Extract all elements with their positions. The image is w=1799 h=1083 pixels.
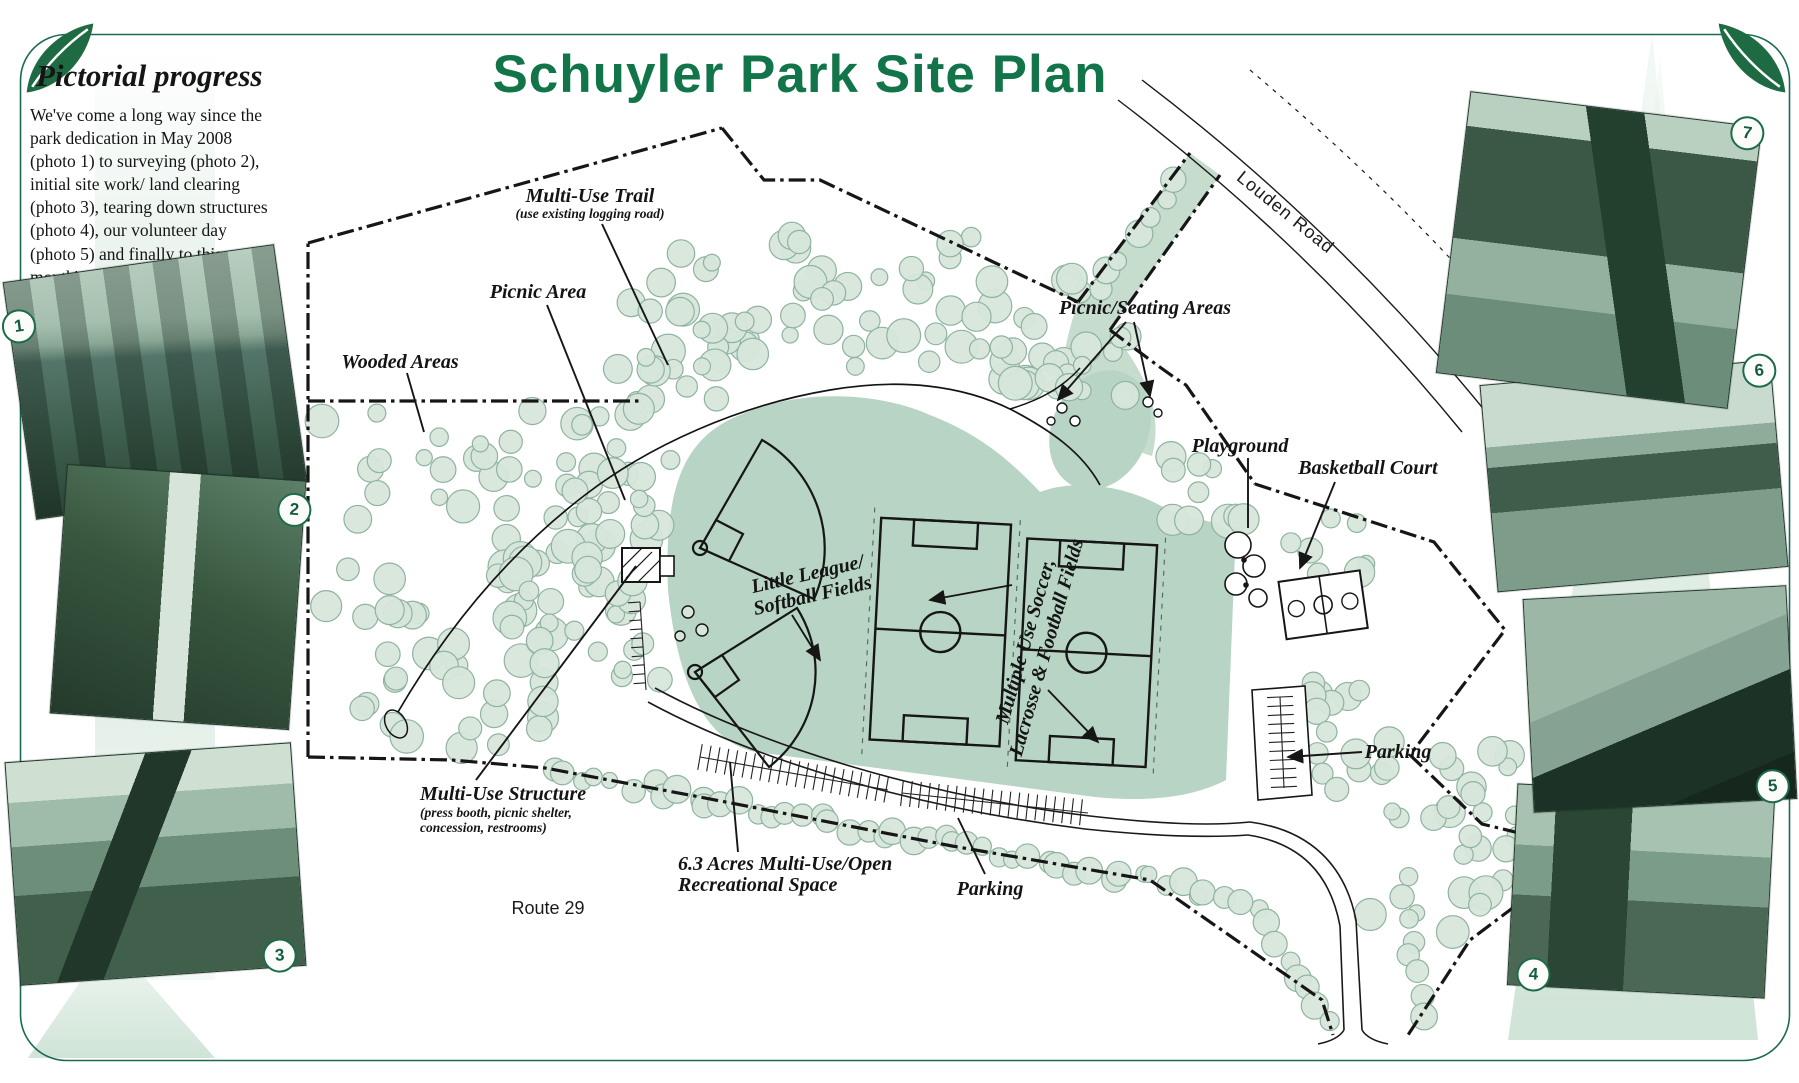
photo-4: 4 bbox=[1507, 783, 1775, 998]
label-picnic-area: Picnic Area bbox=[489, 281, 586, 303]
photo-2: 2 bbox=[50, 464, 307, 730]
label-wooded-areas: Wooded Areas bbox=[341, 351, 458, 373]
label-multi-use-trail-sub: (use existing logging road) bbox=[516, 206, 665, 221]
label-structure-sub2: concession, restrooms) bbox=[420, 820, 547, 835]
label-open-space-1: 6.3 Acres Multi-Use/Open bbox=[678, 853, 892, 875]
newsletter-page: Multi-Use Trail (use existing logging ro… bbox=[0, 0, 1799, 1083]
label-louden-road: Louden Road bbox=[1233, 167, 1338, 258]
page-title: Schuyler Park Site Plan bbox=[470, 44, 1130, 105]
label-basketball-court: Basketball Court bbox=[1297, 457, 1439, 479]
label-playground: Playground bbox=[1191, 435, 1290, 457]
photo-5: 5 bbox=[1523, 585, 1798, 813]
label-multi-use-trail: Multi-Use Trail bbox=[525, 185, 655, 207]
basketball-court-area bbox=[1278, 570, 1367, 639]
photo-badge-4: 4 bbox=[1516, 957, 1552, 993]
label-open-space-2: Recreational Space bbox=[677, 874, 838, 896]
louden-road-edge bbox=[1118, 100, 1462, 432]
photo-badge-5: 5 bbox=[1755, 768, 1791, 804]
label-parking-south: Parking bbox=[956, 878, 1024, 900]
photo-7: 7 bbox=[1436, 91, 1762, 409]
photo-3: 3 bbox=[5, 742, 307, 985]
sidebar-heading: Pictorial progress bbox=[36, 58, 275, 94]
label-picnic-seating-areas: Picnic/Seating Areas bbox=[1058, 297, 1231, 319]
label-multi-use-structure: Multi-Use Structure bbox=[419, 783, 586, 805]
label-route-29: Route 29 bbox=[511, 898, 584, 918]
label-structure-sub1: (press booth, picnic shelter, bbox=[420, 805, 572, 820]
label-parking-east: Parking bbox=[1364, 741, 1432, 763]
svg-text:Louden Road: Louden Road bbox=[1233, 167, 1338, 258]
